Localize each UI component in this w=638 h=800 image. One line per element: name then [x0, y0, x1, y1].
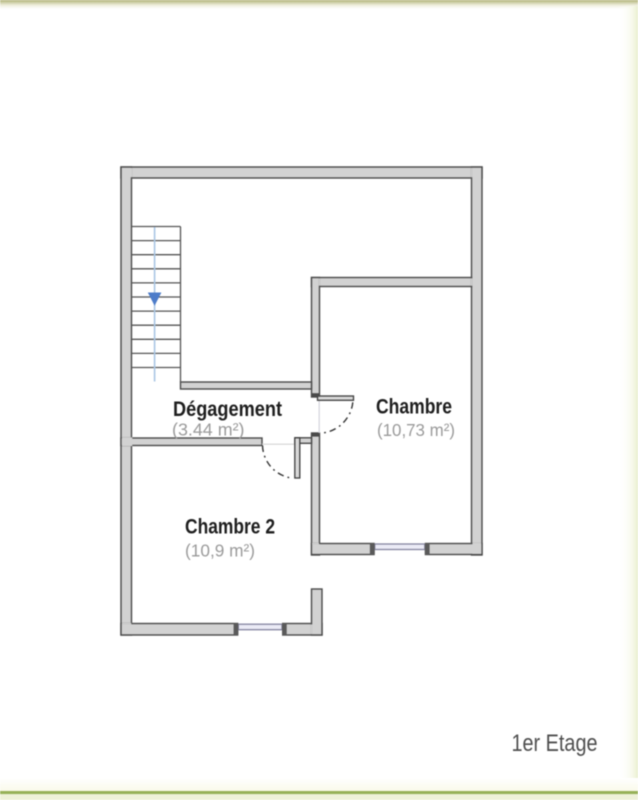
svg-text:(10,9 m²): (10,9 m²): [185, 541, 255, 561]
svg-text:Dégagement: Dégagement: [173, 397, 282, 421]
svg-text:Chambre: Chambre: [376, 395, 452, 419]
svg-text:(3.44 m²): (3.44 m²): [172, 420, 245, 440]
svg-text:1er Etage: 1er Etage: [512, 730, 598, 757]
svg-text:(10,73 m²): (10,73 m²): [377, 420, 455, 440]
svg-text:Chambre 2: Chambre 2: [185, 515, 275, 539]
